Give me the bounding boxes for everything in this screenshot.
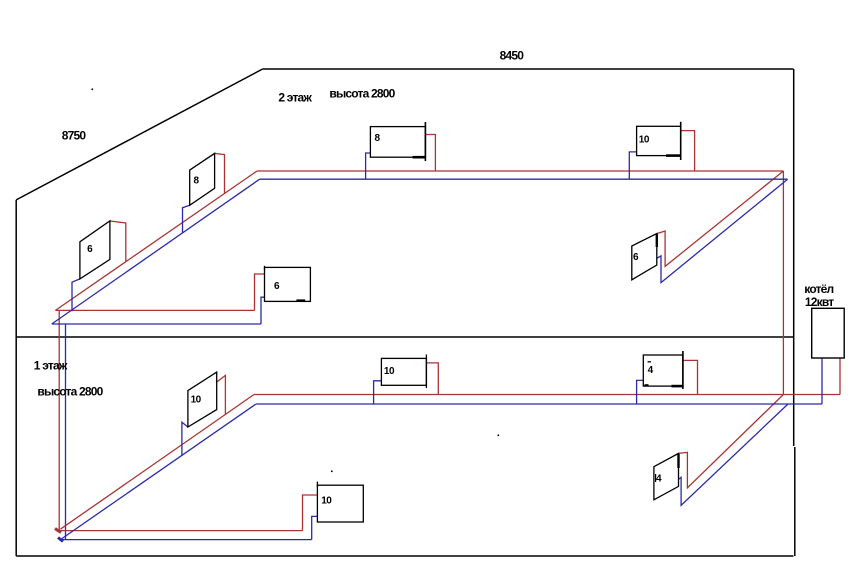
- svg-text:8750: 8750: [62, 129, 87, 143]
- svg-text:10: 10: [639, 134, 650, 145]
- svg-text:8450: 8450: [500, 48, 525, 62]
- svg-text:10: 10: [321, 496, 332, 507]
- svg-text:10: 10: [384, 366, 395, 377]
- svg-text:10: 10: [191, 395, 202, 406]
- svg-text:12квт: 12квт: [805, 295, 834, 309]
- svg-text:котёл: котёл: [804, 282, 833, 296]
- svg-text:высота 2800: высота 2800: [37, 385, 103, 399]
- svg-text:1 этаж: 1 этаж: [34, 358, 68, 372]
- svg-text:2 этаж: 2 этаж: [278, 90, 312, 104]
- svg-text:высота 2800: высота 2800: [329, 86, 395, 100]
